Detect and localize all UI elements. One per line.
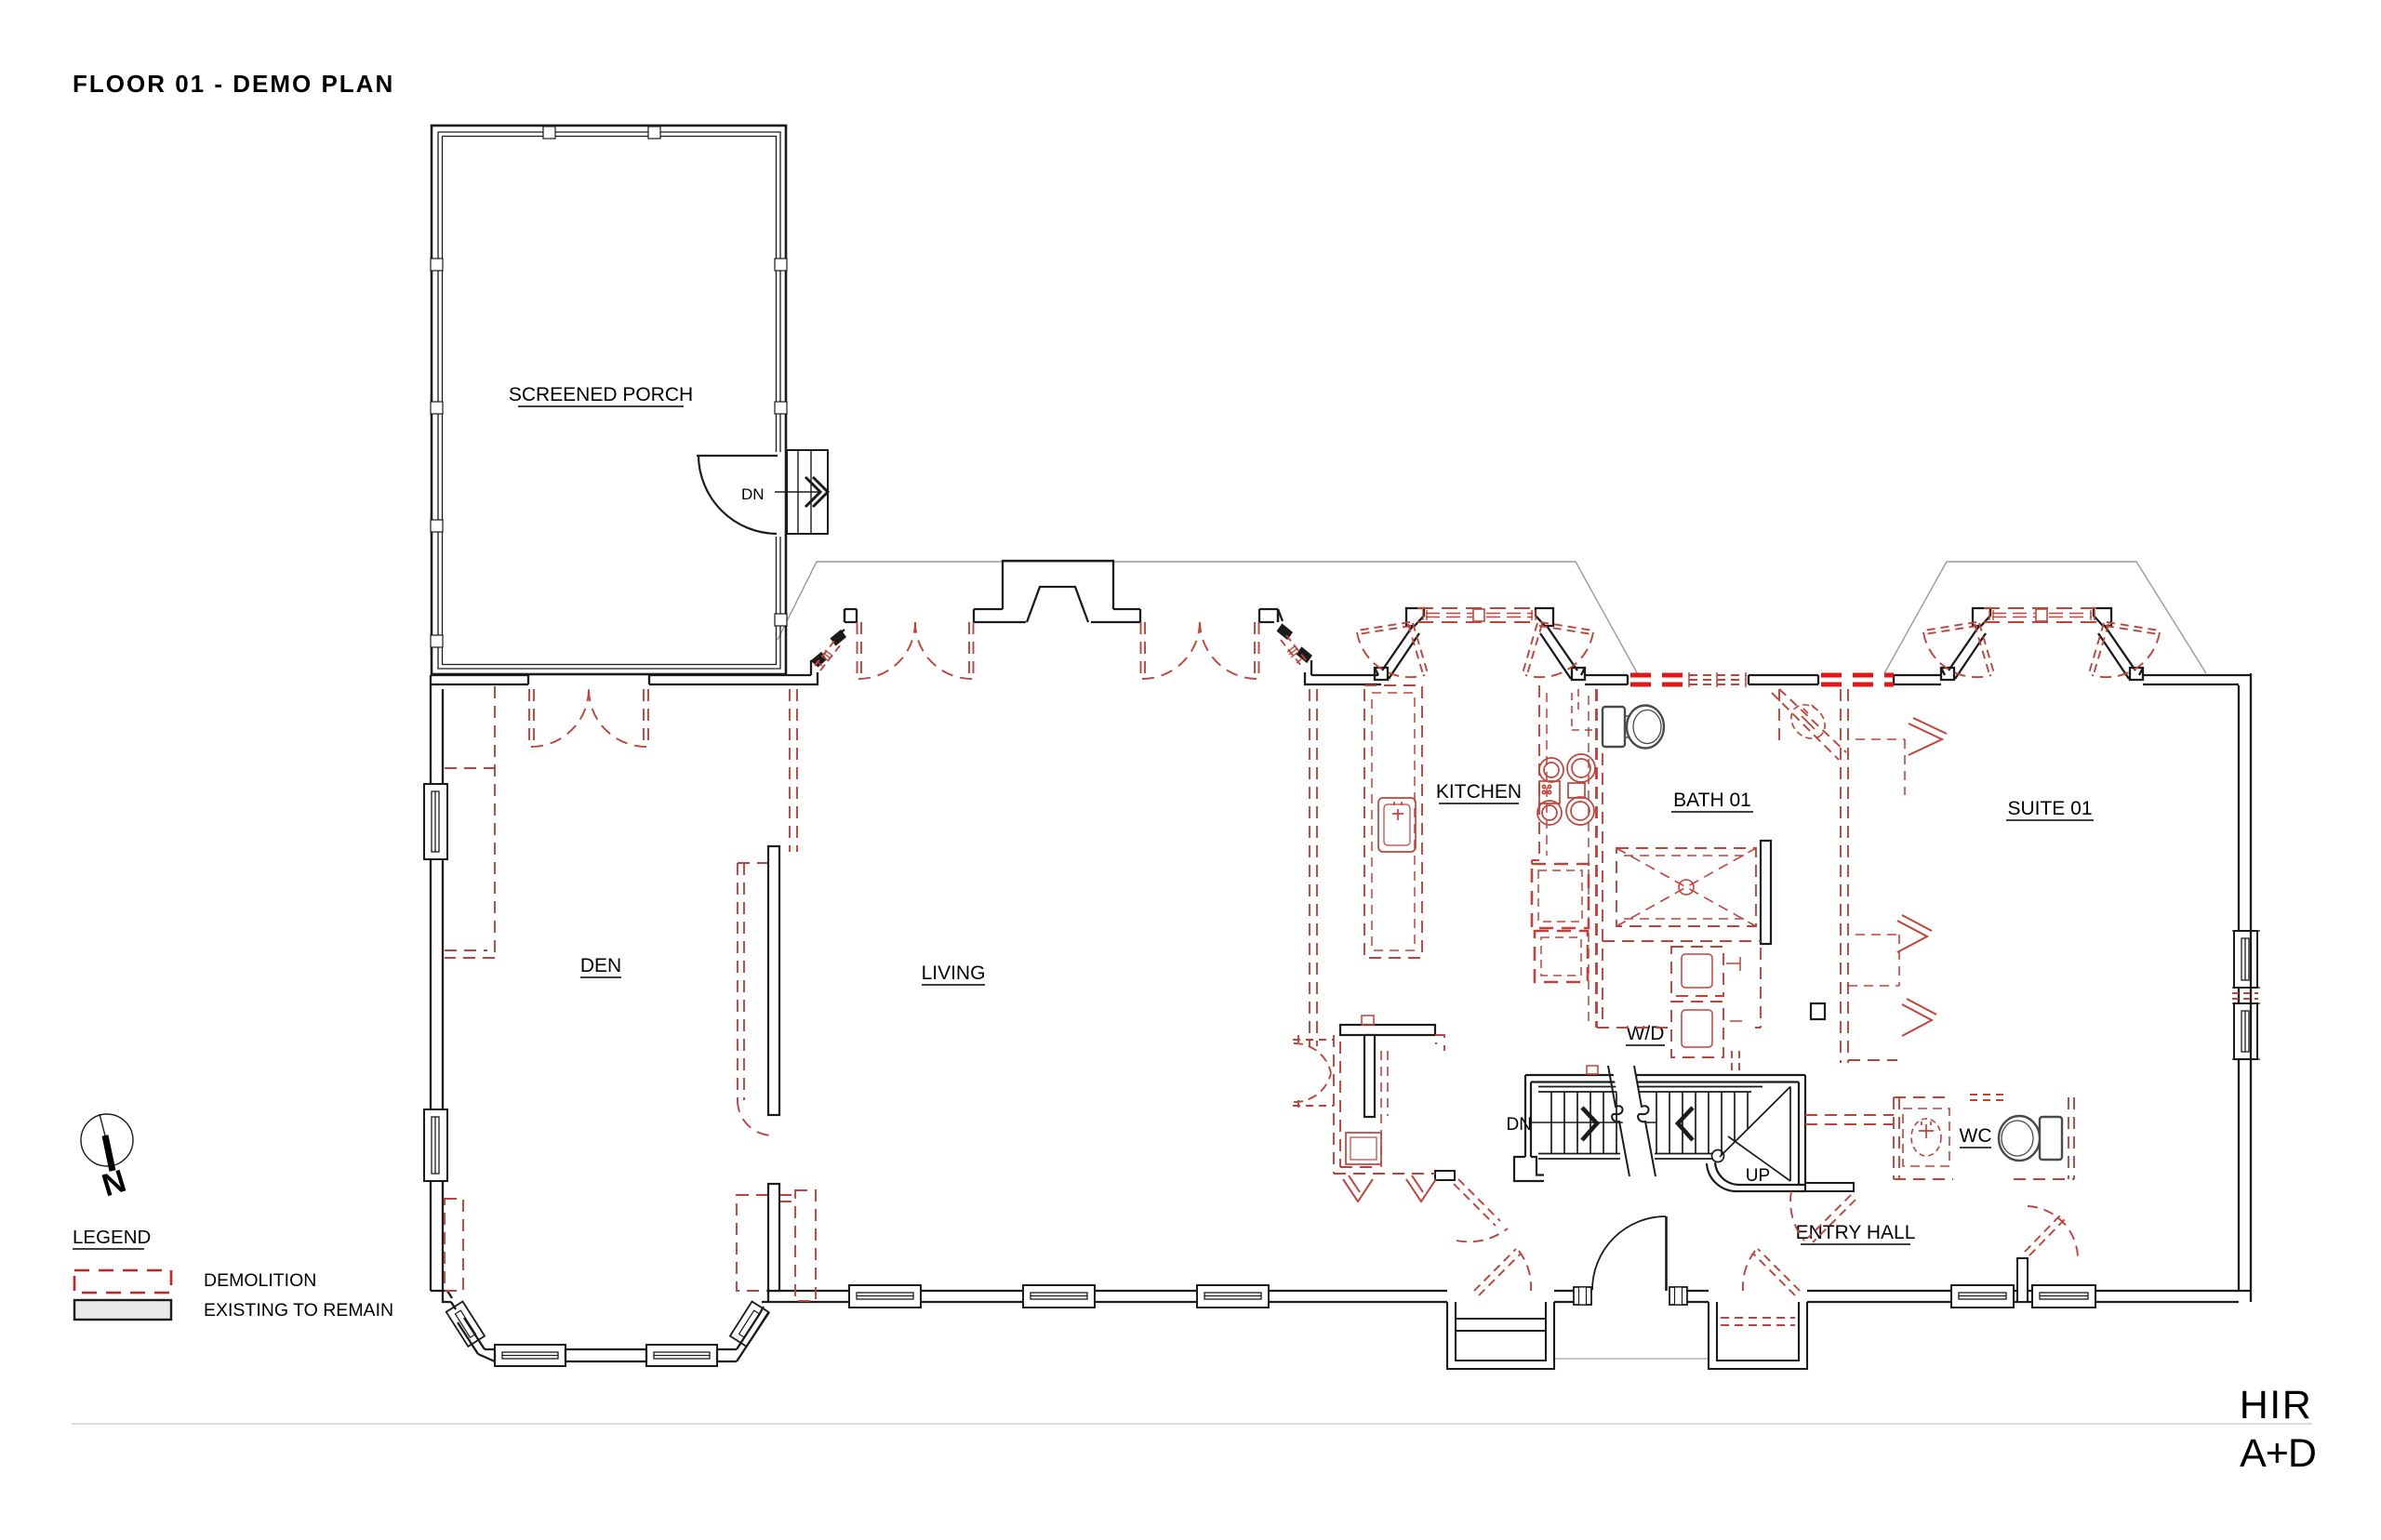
svg-text:EXISTING TO REMAIN: EXISTING TO REMAIN <box>204 1300 393 1321</box>
svg-text:ENTRY HALL: ENTRY HALL <box>1796 1222 1916 1243</box>
svg-text:A+D: A+D <box>2240 1431 2316 1476</box>
svg-text:DEN: DEN <box>580 955 621 976</box>
svg-text:UP: UP <box>1746 1166 1770 1186</box>
svg-text:DEMOLITION: DEMOLITION <box>204 1270 316 1291</box>
svg-text:W/D: W/D <box>1627 1023 1665 1044</box>
svg-text:LEGEND: LEGEND <box>73 1227 151 1248</box>
svg-text:BATH 01: BATH 01 <box>1673 790 1751 811</box>
svg-text:KITCHEN: KITCHEN <box>1436 781 1522 803</box>
svg-text:HIR: HIR <box>2240 1383 2313 1427</box>
svg-text:SUITE 01: SUITE 01 <box>2007 798 2092 819</box>
svg-text:LIVING: LIVING <box>922 962 986 984</box>
svg-text:SCREENED PORCH: SCREENED PORCH <box>509 384 693 405</box>
svg-text:DN: DN <box>1507 1115 1532 1135</box>
svg-text:DN: DN <box>741 485 765 503</box>
svg-text:WC: WC <box>1960 1125 1992 1147</box>
svg-text:FLOOR 01 - DEMO PLAN: FLOOR 01 - DEMO PLAN <box>73 70 394 98</box>
